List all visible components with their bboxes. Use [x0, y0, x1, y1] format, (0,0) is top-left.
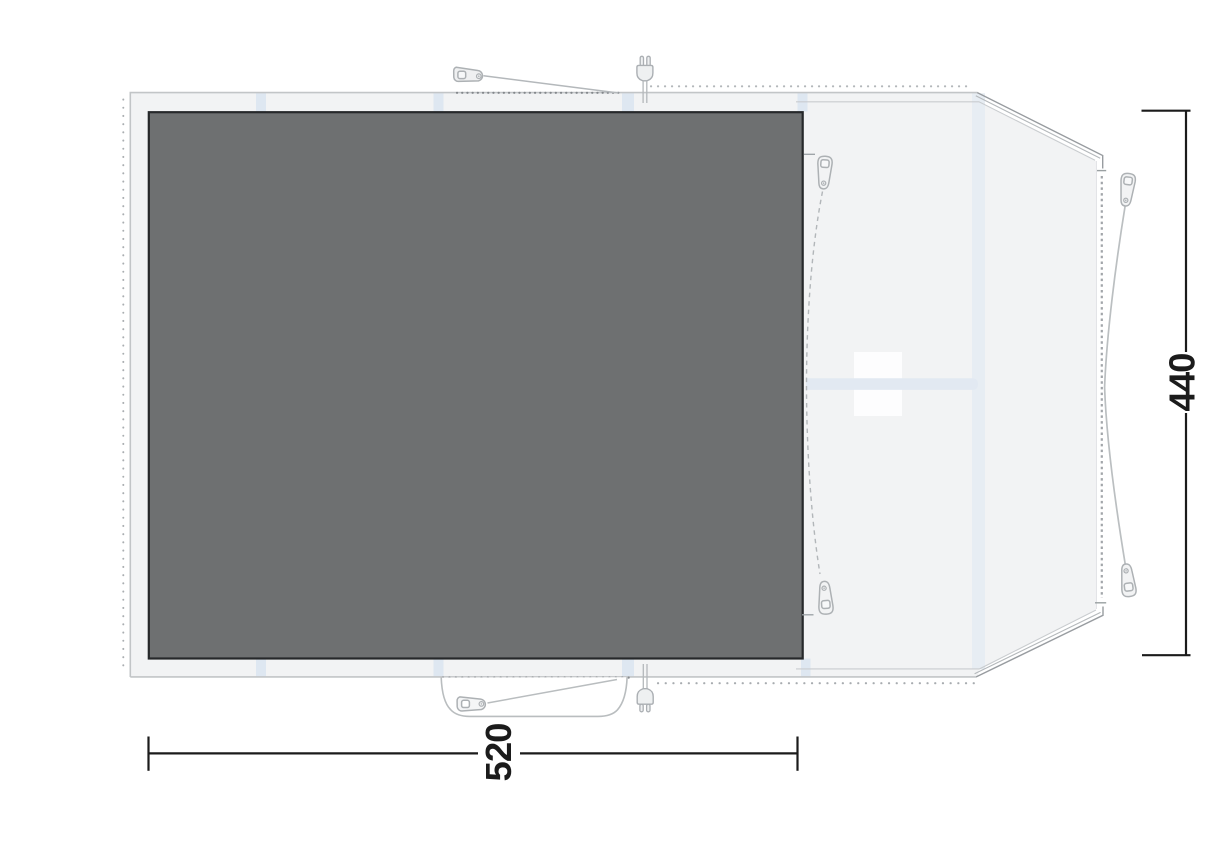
svg-text:440: 440	[1162, 354, 1203, 412]
svg-text:520: 520	[478, 724, 519, 782]
